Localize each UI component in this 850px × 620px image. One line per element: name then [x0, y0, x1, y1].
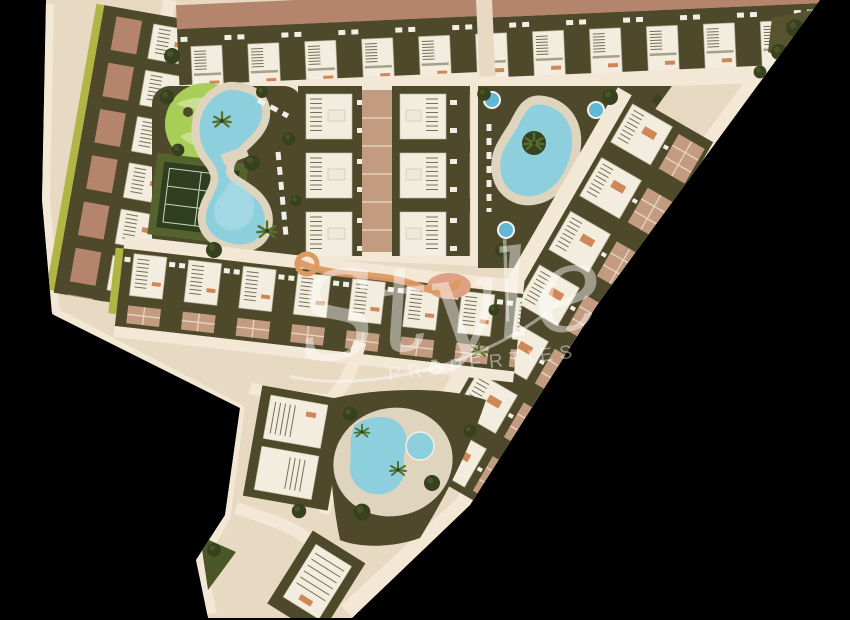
tree-icon	[354, 504, 371, 521]
tree-icon	[256, 86, 268, 98]
tree-icon	[172, 144, 185, 157]
tree-icon	[477, 87, 491, 101]
jacuzzi	[588, 102, 604, 118]
tree-icon	[283, 133, 296, 146]
apartment-strip-center-2	[392, 86, 470, 256]
paved-court-center	[362, 90, 392, 252]
tree-icon	[207, 543, 221, 557]
lawn-cut	[183, 107, 193, 117]
tree-icon	[164, 48, 180, 64]
tree-icon	[602, 89, 618, 105]
screenshot-root: Style PROPERTIES	[0, 0, 850, 620]
apartment-strip-center-1	[298, 86, 362, 256]
swimming-pool-south	[350, 417, 407, 494]
kids-pool-south	[406, 432, 434, 460]
tree-icon	[292, 504, 306, 518]
building-block-center	[298, 86, 470, 256]
tree-icon	[290, 195, 301, 206]
site-plan-rendering: Style PROPERTIES	[0, 0, 850, 620]
tree-icon	[464, 425, 477, 438]
tree-icon	[343, 407, 357, 421]
tree-icon	[244, 155, 260, 171]
park-west	[147, 83, 302, 262]
tree-icon	[206, 242, 222, 258]
tree-icon	[160, 90, 174, 104]
tree-icon	[424, 475, 440, 491]
